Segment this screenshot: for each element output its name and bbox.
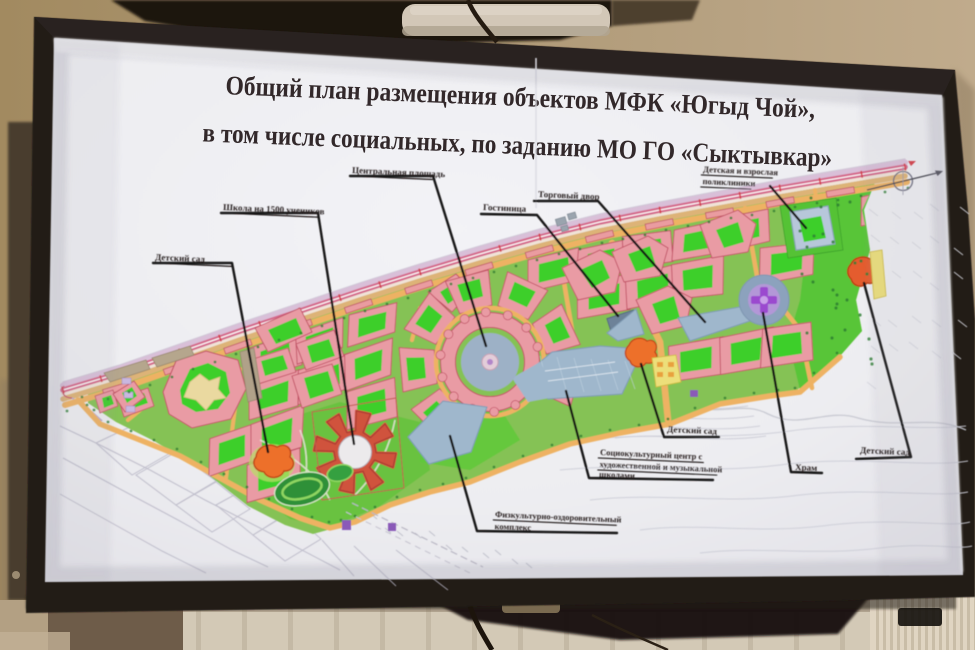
svg-text:школами: школами <box>599 469 635 481</box>
svg-text:Гостиница: Гостиница <box>483 202 527 214</box>
svg-text:Храм: Храм <box>795 462 818 473</box>
svg-text:комплекс: комплекс <box>494 521 531 533</box>
